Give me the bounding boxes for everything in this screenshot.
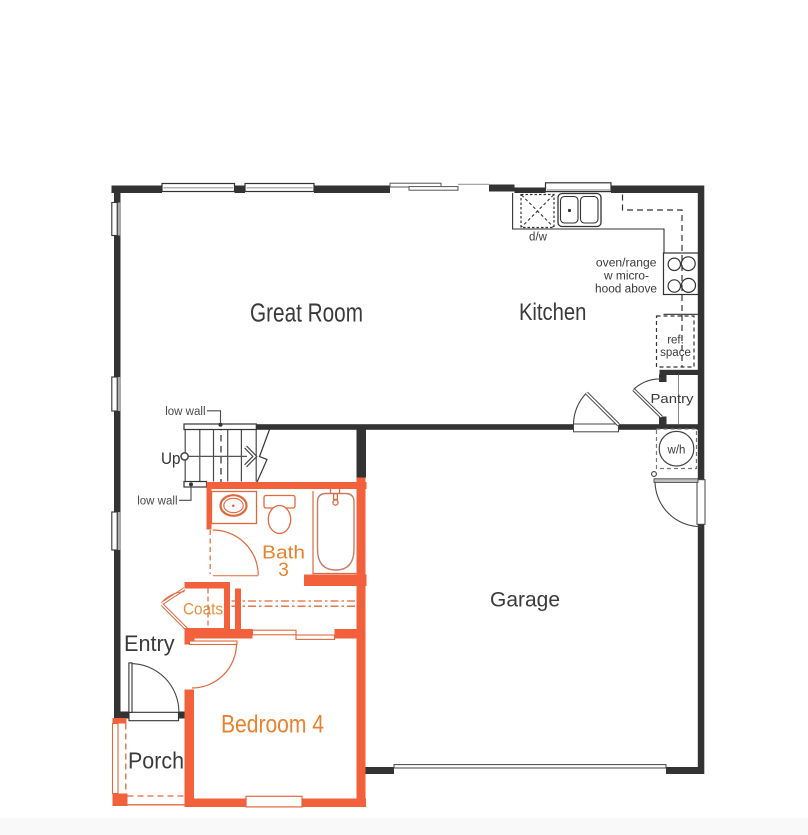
svg-text:Garage: Garage (490, 588, 560, 612)
svg-text:3: 3 (278, 560, 289, 581)
svg-text:Up: Up (161, 449, 181, 468)
svg-text:low wall: low wall (137, 496, 177, 508)
svg-text:Bedroom 4: Bedroom 4 (221, 711, 324, 739)
svg-text:space: space (660, 347, 691, 359)
svg-text:Pantry: Pantry (651, 391, 695, 406)
svg-text:Great Room: Great Room (250, 300, 363, 328)
svg-text:d/w: d/w (529, 232, 548, 244)
svg-text:Kitchen: Kitchen (519, 299, 587, 326)
svg-text:Porch: Porch (128, 748, 184, 774)
svg-text:oven/range: oven/range (596, 258, 657, 270)
svg-text:w micro-: w micro- (603, 271, 649, 283)
svg-text:Coats: Coats (183, 600, 223, 619)
svg-text:low wall: low wall (165, 406, 205, 418)
svg-text:Entry: Entry (124, 631, 175, 656)
svg-text:hood above: hood above (595, 284, 657, 296)
svg-text:ref.: ref. (667, 335, 684, 347)
svg-text:w/h: w/h (667, 445, 686, 457)
